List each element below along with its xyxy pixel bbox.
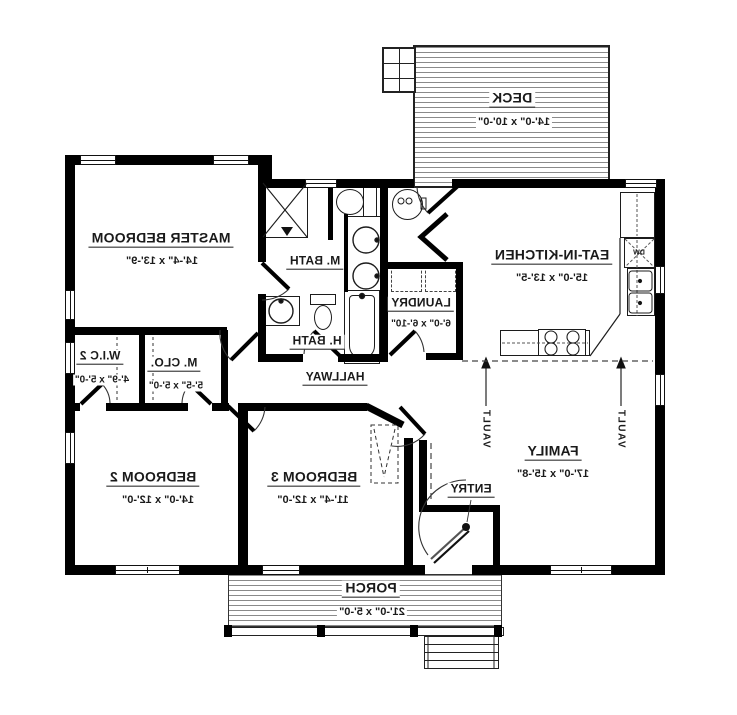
bifold-door-icon — [371, 425, 398, 483]
room-dims-master-bedroom: 14'-4" x 13'-9" — [124, 255, 200, 267]
vault-label: VAULT — [616, 408, 627, 447]
shower-drain-icon — [281, 227, 293, 236]
sink-bowl-icon — [269, 227, 379, 323]
room-dims-porch: 21'-0" x 5'-0" — [337, 606, 407, 618]
angled-wall — [366, 406, 403, 425]
room-name-laundry: LAUNDRY — [388, 297, 454, 312]
room-dims-wic2: 4'-9" x 5'-0" — [73, 375, 131, 386]
room-name-deck: DECK — [489, 91, 535, 108]
room-name-master-bath: M. BATH — [287, 255, 344, 270]
vault-label: VAULT — [481, 408, 492, 447]
room-name-family: FAMILY — [524, 444, 581, 461]
room-name-master-closet: M. CLO. — [148, 357, 201, 372]
room-name-hall-bath: H. BATH — [289, 335, 344, 350]
room-dims-kitchen: 15'-0" x 13'-5" — [514, 272, 590, 284]
room-name-entry: ENTRY — [447, 483, 494, 498]
room-dims-family: 17'-0" x 15'-8" — [515, 468, 591, 480]
room-name-porch: PORCH — [342, 581, 400, 598]
room-name-bedroom-3: BEDROOM 3 — [268, 470, 361, 487]
angled-wall — [421, 214, 447, 260]
room-name-wic2: W.I.C 2 — [77, 350, 124, 365]
room-dims-bedroom-2: 14'-0" x 12'-0" — [120, 494, 196, 506]
room-dims-laundry: 6'-0" x 6'-10" — [389, 319, 453, 330]
step-rail — [428, 636, 494, 669]
cabinet-dashed-line — [502, 194, 654, 343]
room-dims-deck: 14'-0" x 10'-0" — [476, 116, 552, 128]
room-name-hallway: HALLWAY — [303, 371, 368, 386]
dishwasher-label: DW — [633, 250, 645, 257]
room-dims-bedroom-3: 11'-4" x 12'-0" — [275, 494, 350, 506]
room-name-bedroom-2: BEDROOM 2 — [107, 470, 200, 487]
vault-leader-line — [482, 358, 625, 406]
floor-plan: DECK 14'-0" x 10'-0" MASTER BEDROOM 14'-… — [0, 0, 737, 715]
room-dims-master-closet: 5'-5" x 5'-0" — [147, 381, 205, 392]
front-door-icon — [431, 500, 471, 563]
sink-basins-icon — [629, 271, 652, 313]
room-name-kitchen: EAT-IN-KITCHEN — [492, 248, 613, 265]
room-name-master-bedroom: MASTER BEDROOM — [89, 231, 234, 248]
